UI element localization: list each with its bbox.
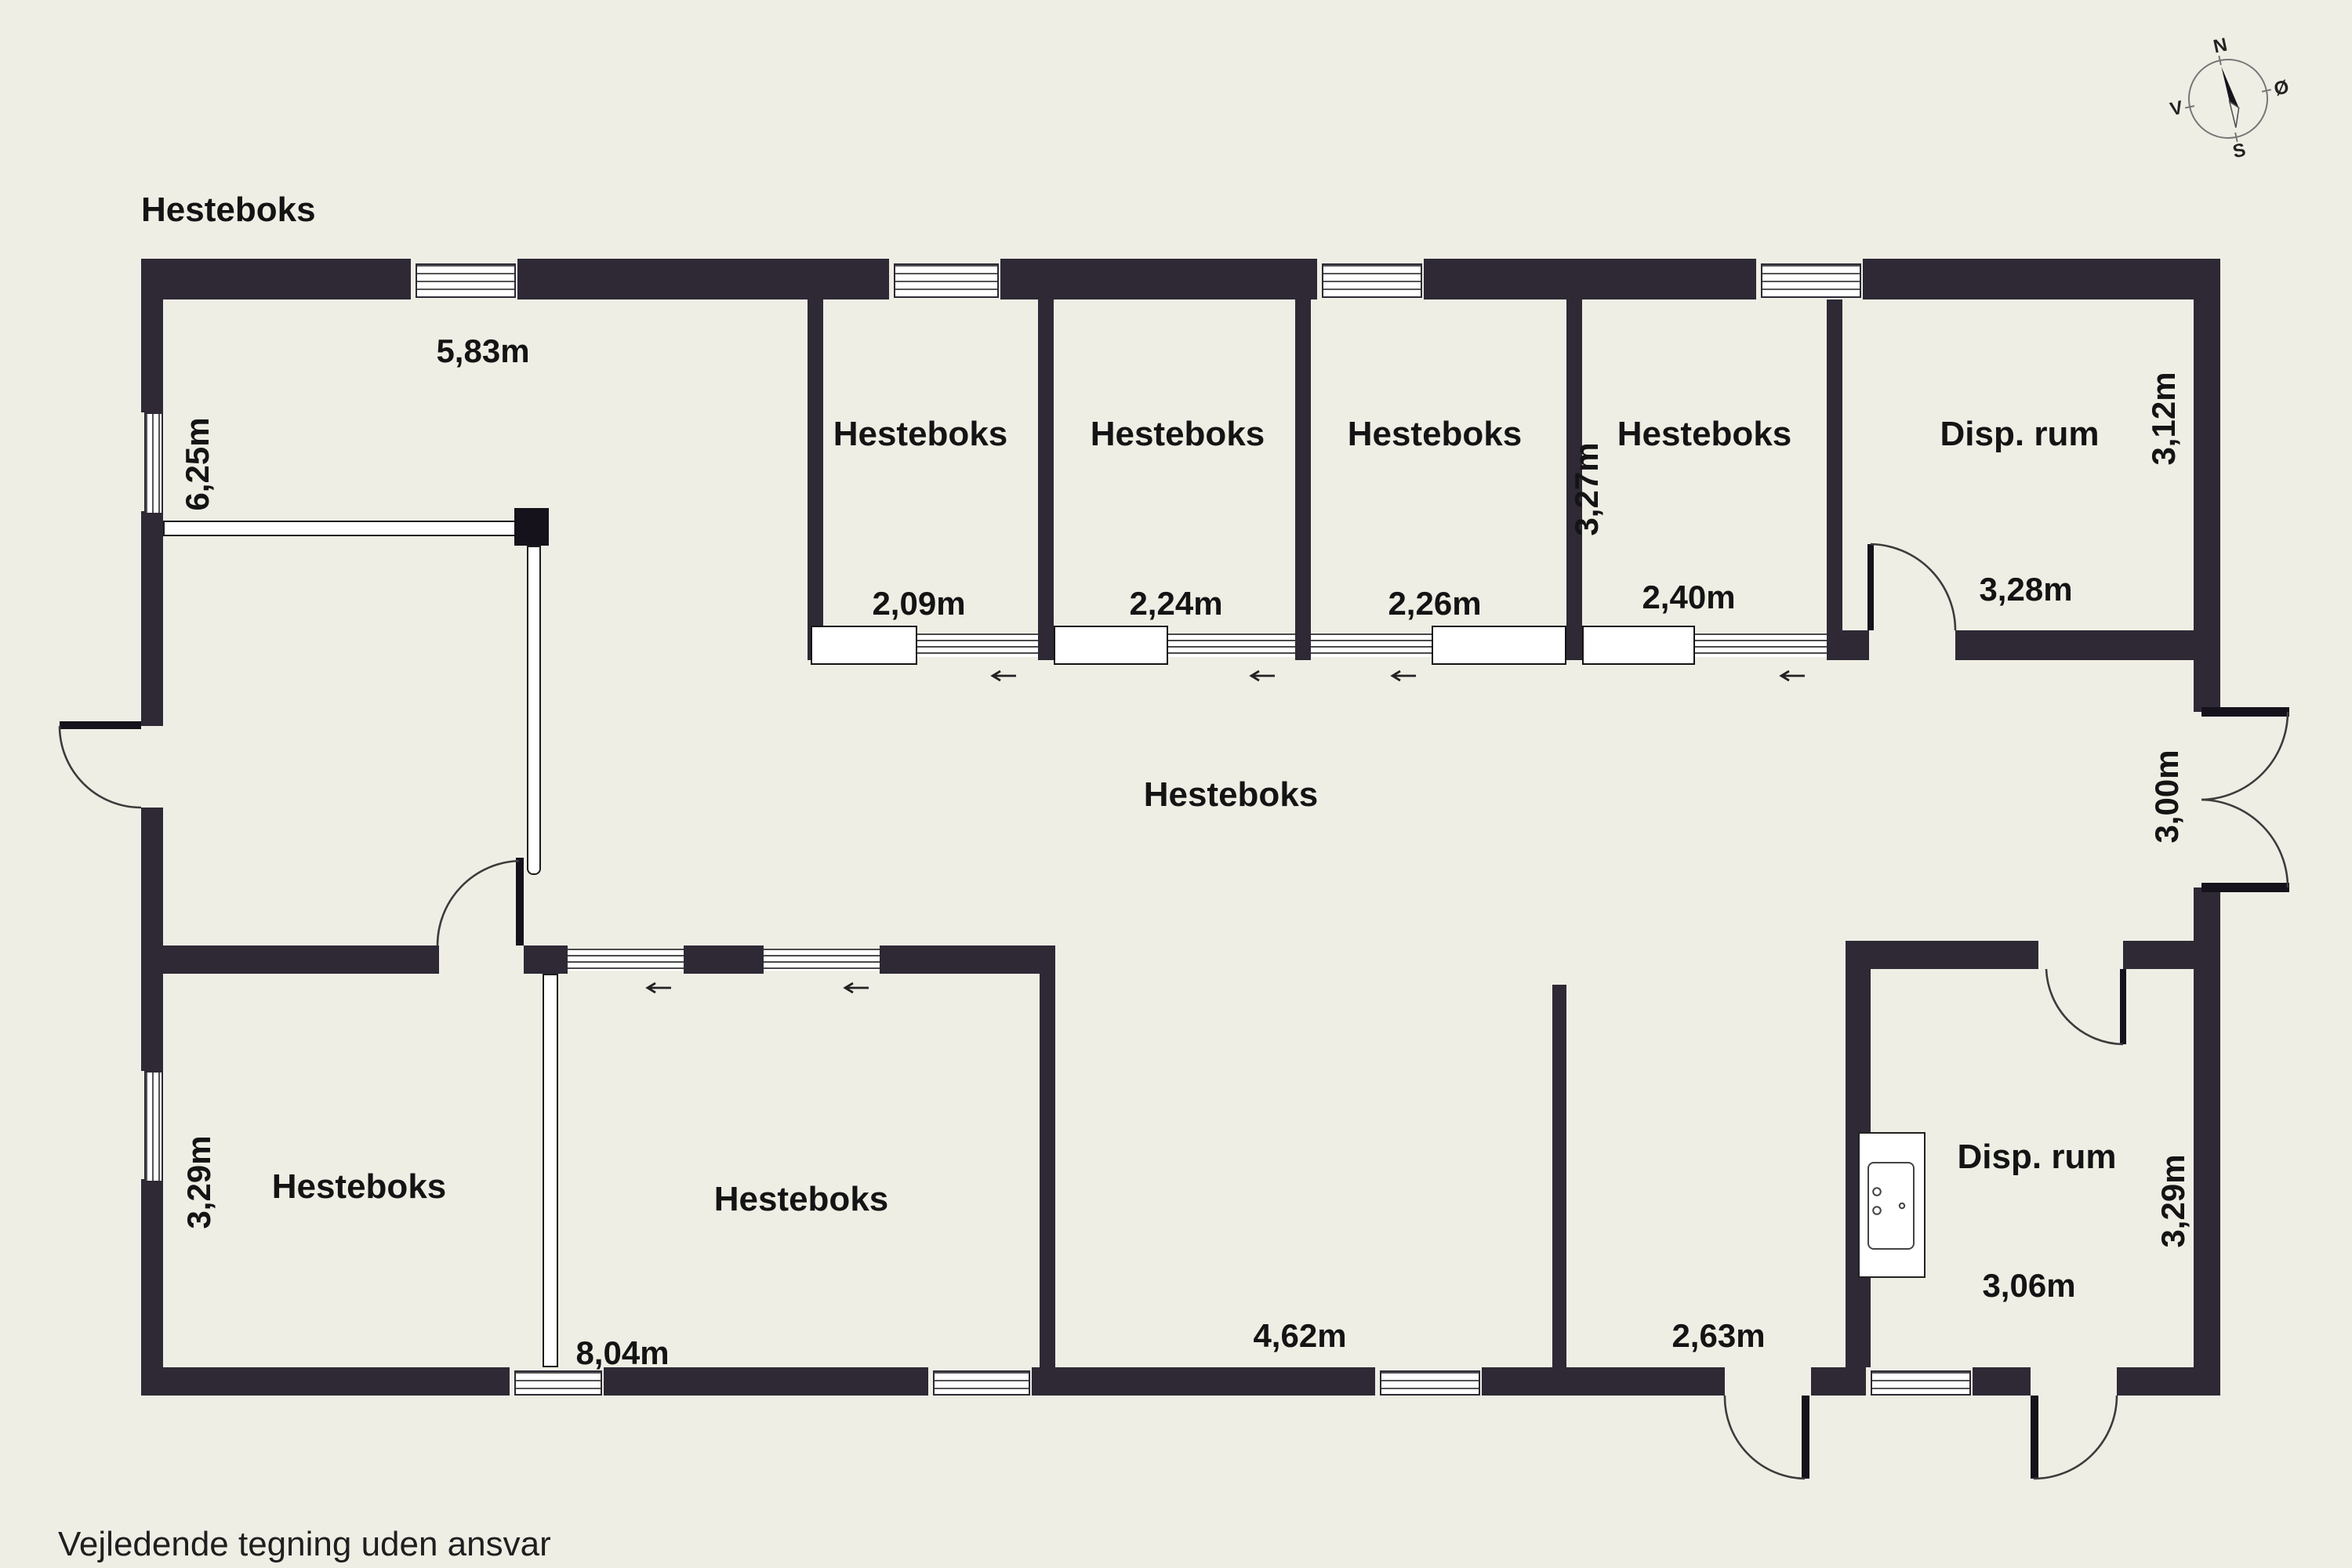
sliding-door-leaf: [1582, 626, 1695, 665]
dim-stall-3: 2,26m: [1388, 586, 1481, 624]
sliding-door-leaf: [1054, 626, 1168, 665]
sliding-door-track: [917, 633, 1038, 657]
room-label-stall-4: Hesteboks: [1617, 414, 1792, 455]
window: [144, 412, 163, 514]
room-label-bottom-left: Hesteboks: [272, 1167, 447, 1207]
partition-wall: [543, 974, 558, 1367]
room-label-central: Hesteboks: [1144, 775, 1319, 815]
window: [1761, 263, 1861, 298]
wall-right: [2194, 259, 2220, 712]
door-leaf: [1802, 1396, 1809, 1479]
stall-divider: [808, 299, 823, 660]
stall-front-wall: [1566, 630, 1582, 660]
partition-rail: [163, 521, 519, 536]
dim-disp-top-depth: 3,12m: [2147, 372, 2184, 465]
door-arcs: [60, 544, 2288, 1479]
floor-plan: N Ø S V Hesteboks Hesteboks Hesteboks He…: [0, 0, 2352, 1568]
wall-bottom: [141, 1367, 510, 1396]
door-leaf: [2031, 1396, 2038, 1479]
wall-bottom: [1482, 1367, 1725, 1396]
stall-divider: [1827, 299, 1842, 660]
wall-top: [1424, 259, 1756, 299]
window: [894, 263, 999, 298]
sliding-door-track: [568, 949, 684, 971]
wall-interior: [1040, 946, 1055, 1367]
dim-stall-2: 2,24m: [1129, 586, 1222, 624]
door-leaf: [2201, 707, 2289, 717]
door-leaf: [60, 721, 141, 729]
dim-disp-top-width: 3,28m: [1979, 572, 2072, 610]
window: [933, 1370, 1030, 1396]
dim-bottom-right: 2,63m: [1671, 1319, 1765, 1356]
wall-interior: [684, 946, 764, 974]
stall-front-wall: [1955, 630, 2194, 660]
wall-interior: [1871, 941, 2038, 969]
dim-bottom-mid: 4,62m: [1253, 1319, 1346, 1356]
dim-bottom-middle: 8,04m: [575, 1336, 669, 1374]
partition-rail: [527, 546, 541, 875]
room-label-stall-3: Hesteboks: [1348, 414, 1523, 455]
window: [1380, 1370, 1480, 1396]
sliding-door-leaf: [1432, 626, 1566, 665]
door-leaf: [516, 858, 524, 946]
window: [416, 263, 516, 298]
sink-icon: [1867, 1162, 1915, 1250]
wall-top: [1000, 259, 1317, 299]
room-label-stall-1: Hesteboks: [833, 414, 1008, 455]
room-label-bottom-middle: Hesteboks: [714, 1179, 889, 1220]
disclaimer-note: Vejledende tegning uden ansvar: [58, 1524, 551, 1565]
window: [144, 1071, 163, 1182]
room-label-stall-2: Hesteboks: [1091, 414, 1265, 455]
stall-divider: [1038, 299, 1054, 660]
dim-disp-bottom-width: 3,06m: [1982, 1269, 2075, 1306]
dim-disp-bottom-depth: 3,29m: [2156, 1154, 2194, 1247]
wall-left: [141, 511, 163, 726]
stall-front-wall: [1295, 630, 1311, 660]
wall-bottom: [2117, 1367, 2220, 1396]
wall-interior: [163, 946, 439, 974]
sliding-door-track: [1168, 633, 1295, 657]
sliding-door-track: [764, 949, 880, 971]
compass-icon: [2176, 47, 2281, 151]
slide-arrow-icon: [648, 671, 1805, 993]
wall-bottom: [1811, 1367, 1866, 1396]
dim-left-window-bottom: 3,29m: [182, 1135, 220, 1229]
wall-interior: [880, 946, 1040, 974]
window: [1871, 1370, 1971, 1396]
compass-east-label: Ø: [2272, 75, 2291, 100]
window: [514, 1370, 602, 1396]
compass-west-label: V: [2168, 96, 2185, 121]
wall-bottom: [1032, 1367, 1375, 1396]
wall-interior: [524, 946, 568, 974]
stall-front-wall: [1842, 630, 1869, 660]
door-leaf: [2120, 969, 2126, 1044]
window: [1322, 263, 1422, 298]
dim-top-window: 5,83m: [436, 334, 529, 372]
wall-left: [141, 259, 163, 412]
dim-right-door: 3,00m: [2150, 750, 2187, 843]
sliding-door-track: [1311, 633, 1432, 657]
sliding-door-track: [1695, 633, 1827, 657]
dim-stall-depth: 3,27m: [1570, 442, 1607, 535]
door-leaf: [2201, 883, 2289, 892]
room-label-top-left: Hesteboks: [141, 190, 316, 230]
stall-front-wall: [1827, 630, 1842, 660]
compass-north-label: N: [2212, 34, 2230, 58]
dim-stall-4: 2,40m: [1642, 580, 1735, 618]
compass-south-label: S: [2230, 139, 2248, 163]
wall-interior: [2123, 941, 2194, 969]
door-leaf: [1867, 544, 1874, 630]
sliding-door-leaf: [811, 626, 917, 665]
stall-front-wall: [1038, 630, 1054, 660]
dim-stall-1: 2,09m: [872, 586, 965, 624]
wall-top: [1863, 259, 2220, 299]
stall-divider: [1295, 299, 1311, 660]
wall-stub: [1552, 985, 1566, 1367]
wall-bottom: [1973, 1367, 2031, 1396]
wall-top: [517, 259, 889, 299]
partition-post: [514, 508, 549, 546]
wall-left: [141, 808, 163, 1071]
room-label-disp-bottom: Disp. rum: [1958, 1137, 2117, 1178]
wall-top: [141, 259, 411, 299]
wall-left: [141, 1179, 163, 1396]
room-label-disp-top: Disp. rum: [1940, 414, 2100, 455]
wall-right: [2194, 887, 2220, 1396]
dim-left-window-top: 6,25m: [180, 417, 218, 510]
